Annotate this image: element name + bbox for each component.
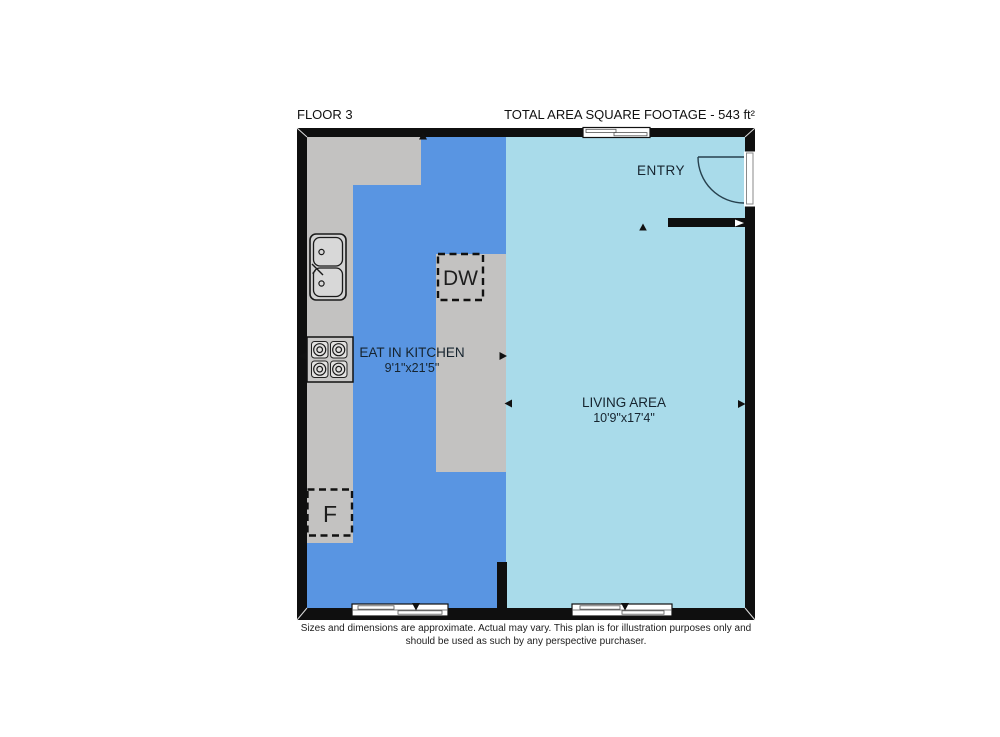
fridge-label: F xyxy=(323,501,337,527)
living-dimensions: 10'9"x17'4" xyxy=(593,411,655,425)
stove-icon xyxy=(307,337,353,382)
living-label: LIVING AREA xyxy=(582,395,666,410)
total-area-label: TOTAL AREA SQUARE FOOTAGE - 543 ft² xyxy=(504,107,756,122)
window-sash xyxy=(398,611,442,614)
window-sash xyxy=(580,606,620,609)
counter-top-left xyxy=(307,137,421,185)
floor-plan-canvas: FLOOR 3 TOTAL AREA SQUARE FOOTAGE - 543 … xyxy=(0,0,1000,737)
dishwasher-label: DW xyxy=(443,267,478,290)
window-sash xyxy=(586,129,616,132)
window-bottom-kitchen-icon xyxy=(352,604,448,616)
floor-label: FLOOR 3 xyxy=(297,107,353,122)
window-sash xyxy=(358,606,394,609)
window-bottom-living-icon xyxy=(572,604,672,616)
bottom-partition-wall xyxy=(497,562,507,608)
sink-icon xyxy=(310,234,346,300)
disclaimer-line1: Sizes and dimensions are approximate. Ac… xyxy=(301,623,751,634)
window-sash xyxy=(622,611,664,614)
entry-partition-wall xyxy=(668,218,745,227)
entry-label: ENTRY xyxy=(637,163,685,178)
window-top-icon xyxy=(583,128,650,138)
kitchen-label: EAT IN KITCHEN xyxy=(359,345,464,360)
kitchen-dimensions: 9'1"x21'5" xyxy=(385,361,440,375)
window-sash xyxy=(614,133,647,136)
door-jamb xyxy=(747,153,754,204)
disclaimer-line2: should be used as such by any perspectiv… xyxy=(406,636,647,647)
